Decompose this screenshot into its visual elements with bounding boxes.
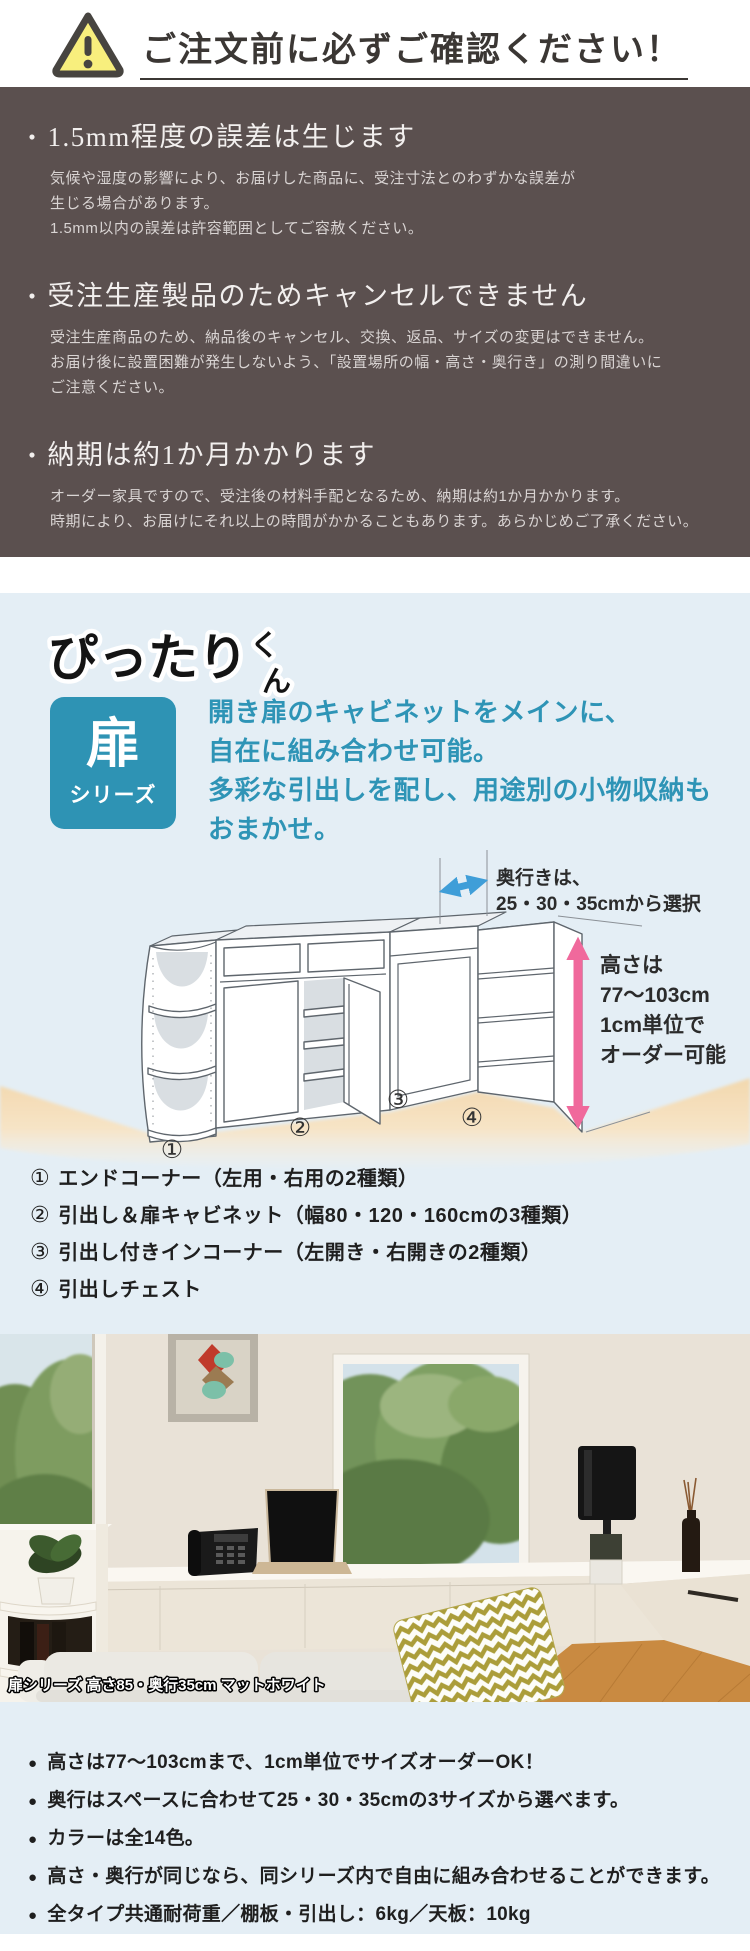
notice-heading: ・ 受注生産製品のためキャンセルできません (20, 274, 722, 313)
legend-text: 引出し付きインコーナー（左開き・右開きの2種類） (58, 1235, 541, 1271)
photo-picture-frame (168, 1334, 258, 1422)
warning-triangle-icon (50, 10, 126, 78)
feature-bullet: ● (28, 1745, 37, 1782)
feature-item: ● 高さは77〜103cmまで、1cm単位でサイズオーダーOK！ (28, 1744, 730, 1782)
legend-num: ④ (30, 1271, 50, 1307)
notice-heading-text: 1.5mm程度の誤差は生じます (48, 115, 416, 154)
legend-text: 引出し＆扉キャビネット（幅80・120・160cmの3種類） (58, 1198, 582, 1234)
feature-item: ● 奥行はスペースに合わせて25・30・35cmの3サイズから選べます。 (28, 1782, 730, 1820)
notice-heading: ・ 納期は約1か月かかります (20, 433, 722, 472)
notice-body-line: 1.5mm以内の誤差は許容範囲としてご容赦ください。 (50, 216, 722, 241)
notice-body-line: ご注意ください。 (50, 375, 722, 400)
unit-number-2: ② (289, 1114, 311, 1142)
cabinet-diagram: 奥行きは、 25・30・35cmから選択 高さは 77〜103cm 1cm単位で… (0, 840, 750, 1170)
door-series-badge: 扉 シリーズ (50, 697, 176, 829)
photo-caption: 扉シリーズ 高さ85・奥行35cm マットホワイト (7, 1676, 326, 1694)
warning-exclamation-dot (84, 60, 93, 69)
legend-num: ③ (30, 1234, 50, 1270)
series-section: ぴったり く ん 扉 シリーズ 開き扉のキャビネットをメインに、 自在に組み合わ… (0, 593, 750, 1334)
notices-section: ・ 1.5mm程度の誤差は生じます 気候や湿度の影響により、お届けした商品に、受… (0, 87, 750, 557)
photo-telephone (188, 1528, 258, 1576)
badge-label: シリーズ (70, 779, 157, 809)
legend-item: ③ 引出し付きインコーナー（左開き・右開きの2種類） (30, 1234, 582, 1271)
feature-item: ● 全タイプ共通耐荷重／棚板・引出し：6kg／天板：10kg (28, 1896, 730, 1934)
feature-text: カラーは全14色。 (47, 1820, 204, 1857)
depth-label-line1: 奥行きは、 (496, 866, 591, 889)
series-description-line: 開き扉のキャビネットをメインに、 (208, 693, 712, 732)
feature-text: 高さは77〜103cmまで、1cm単位でサイズオーダーOK！ (47, 1744, 544, 1781)
notice-lead-time: ・ 納期は約1か月かかります オーダー家具ですので、受注後の材料手配となるため、… (20, 433, 722, 534)
pittarikun-logo: ぴったり く ん (46, 613, 316, 705)
legend-num: ② (30, 1197, 50, 1233)
legend-text: エンドコーナー（左用・右用の2種類） (58, 1161, 418, 1197)
series-description-line: 多彩な引出しを配し、用途別の小物収納も (208, 771, 712, 810)
legend-num: ① (30, 1160, 50, 1196)
badge-kanji: 扉 (86, 717, 140, 771)
notice-body: 受注生産商品のため、納品後のキャンセル、交換、返品、サイズの変更はできません。 … (50, 325, 722, 400)
height-label-line2: 77〜103cm (600, 984, 710, 1007)
photo-right-window (300, 1354, 560, 1579)
notice-body-line: お届け後に設置困難が発生しないよう、「設置場所の幅・高さ・奥行き」の測り間違いに (50, 350, 722, 375)
notice-body-line: 時期により、お届けにそれ以上の時間がかかることもあります。あらかじめご了承くださ… (50, 509, 722, 534)
notice-bullet: ・ (20, 277, 46, 312)
feature-bullet: ● (28, 1859, 37, 1896)
feature-text: 高さ・奥行が同じなら、同シリーズ内で自由に組み合わせることができます。 (47, 1858, 720, 1895)
product-page: ご注文前に必ずご確認ください！ ・ 1.5mm程度の誤差は生じます 気候や湿度の… (0, 0, 750, 1951)
legend-text: 引出しチェスト (58, 1272, 202, 1308)
logo-main-text: ぴったり (48, 630, 248, 686)
features-section: ● 高さは77〜103cmまで、1cm単位でサイズオーダーOK！ ● 奥行はスペ… (0, 1702, 750, 1934)
depth-label-line2: 25・30・35cmから選択 (496, 893, 702, 915)
feature-item: ● 高さ・奥行が同じなら、同シリーズ内で自由に組み合わせることができます。 (28, 1858, 730, 1896)
warning-exclamation-bar (85, 36, 92, 56)
notice-body-line: 気候や湿度の影響により、お届けした商品に、受注寸法とのわずかな誤差が (50, 166, 722, 191)
feature-bullet: ● (28, 1897, 37, 1934)
notice-heading: ・ 1.5mm程度の誤差は生じます (20, 115, 722, 154)
height-label-line3: 1cm単位で (600, 1013, 705, 1037)
notice-no-cancel: ・ 受注生産製品のためキャンセルできません 受注生産商品のため、納品後のキャンセ… (20, 274, 722, 400)
feature-bullet: ● (28, 1821, 37, 1858)
legend-item: ② 引出し＆扉キャビネット（幅80・120・160cmの3種類） (30, 1197, 582, 1234)
notice-heading-text: 納期は約1か月かかります (48, 433, 377, 472)
feature-bullet: ● (28, 1783, 37, 1820)
legend-item: ① エンドコーナー（左用・右用の2種類） (30, 1160, 582, 1197)
depth-arrow (447, 882, 480, 890)
height-label-line4: オーダー可能 (600, 1043, 726, 1067)
notice-bullet: ・ (20, 118, 46, 153)
notice-body: オーダー家具ですので、受注後の材料手配となるため、納期は約1か月かかります。 時… (50, 484, 722, 534)
notice-body: 気候や湿度の影響により、お届けした商品に、受注寸法とのわずかな誤差が 生じる場合… (50, 166, 722, 241)
room-photo: 扉シリーズ 高さ85・奥行35cm マットホワイト (0, 1334, 750, 1702)
unit-number-3: ③ (387, 1086, 409, 1114)
series-description: 開き扉のキャビネットをメインに、 自在に組み合わせ可能。 多彩な引出しを配し、用… (208, 693, 712, 849)
notice-body-line: 生じる場合があります。 (50, 191, 722, 216)
unit-number-4: ④ (461, 1104, 483, 1132)
page-title: ご注文前に必ずご確認ください！ (140, 22, 688, 80)
unit-legend: ① エンドコーナー（左用・右用の2種類） ② 引出し＆扉キャビネット（幅80・1… (30, 1160, 582, 1308)
height-tick-top (558, 916, 642, 926)
series-description-line: 自在に組み合わせ可能。 (208, 732, 712, 771)
notice-bullet: ・ (20, 436, 46, 471)
height-label-line1: 高さは (600, 953, 663, 977)
notice-heading-text: 受注生産製品のためキャンセルできません (48, 274, 589, 313)
logo-small-top-text: く (250, 630, 279, 662)
legend-item: ④ 引出しチェスト (30, 1271, 582, 1308)
feature-text: 全タイプ共通耐荷重／棚板・引出し：6kg／天板：10kg (47, 1896, 530, 1933)
notice-tolerance: ・ 1.5mm程度の誤差は生じます 気候や湿度の影響により、お届けした商品に、受… (20, 115, 722, 241)
notice-body-line: オーダー家具ですので、受注後の材料手配となるため、納期は約1か月かかります。 (50, 484, 722, 509)
notice-body-line: 受注生産商品のため、納品後のキャンセル、交換、返品、サイズの変更はできません。 (50, 325, 722, 350)
feature-item: ● カラーは全14色。 (28, 1820, 730, 1858)
feature-text: 奥行はスペースに合わせて25・30・35cmの3サイズから選べます。 (47, 1782, 629, 1819)
